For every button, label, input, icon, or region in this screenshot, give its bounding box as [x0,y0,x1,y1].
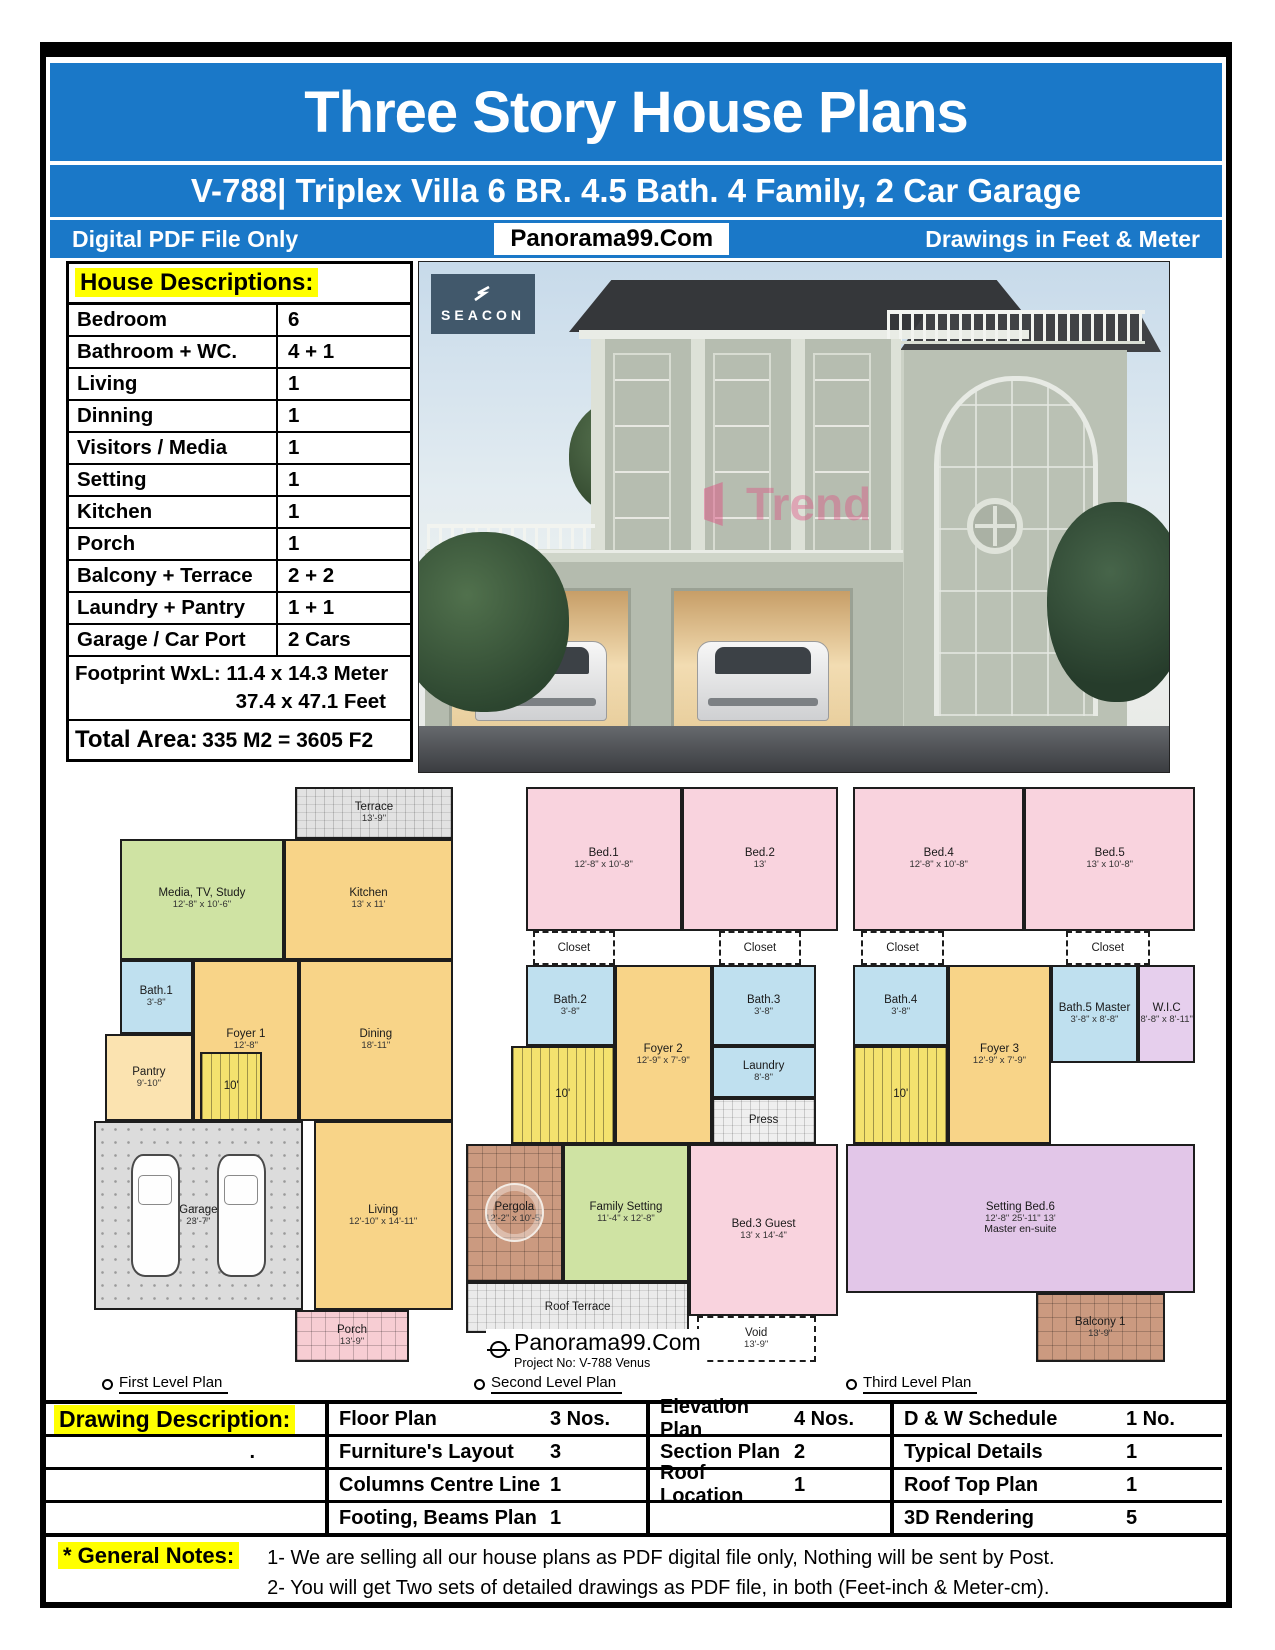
room-10: 10' [200,1052,262,1121]
drawing-table-cell: Columns Centre Line1 [329,1470,646,1503]
drawing-item-count: 1 [1126,1474,1212,1497]
page-title: Three Story House Plans [304,79,968,146]
drawing-description-table: Drawing Description: . Floor Plan3 Nos.F… [46,1400,1226,1537]
pdf-only-note: Digital PDF File Only [72,226,298,253]
room-terrace: Terrace13'-9" [295,787,452,839]
balcony-railing [887,310,1145,344]
plan-label: First Level Plan [102,1374,228,1394]
plan-label-text: Third Level Plan [863,1374,977,1394]
plan-label-marker-icon [474,1379,485,1390]
drawing-item-count: 2 [794,1441,880,1464]
room-name: Balcony 1 [1075,1316,1126,1329]
drawing-item-label: Section Plan [660,1441,794,1464]
room-dimension: 12'-8" [234,1041,258,1052]
house-description-value: 2 Cars [278,625,410,655]
drawing-item-label: Columns Centre Line [339,1474,550,1497]
room-bath-4: Bath.43'-8" [853,965,948,1046]
drawing-item-count: 3 [550,1441,636,1464]
house-photo: SEACON Trend [418,261,1170,773]
room-dimension: 3'-8" x 8'-8" [1071,1015,1119,1026]
drawing-item-label: D & W Schedule [904,1408,1126,1431]
total-area-label: Total Area: [75,726,198,753]
room-dimension: 13'-9" [1088,1329,1112,1340]
room-laundry: Laundry8'-8" [712,1046,816,1098]
floor-plans: Terrace13'-9"Media, TV, Study12'-8" x 10… [46,775,1226,1400]
house-descriptions-title-row: House Descriptions: [69,264,410,305]
room-bath-5-master: Bath.5 Master3'-8" x 8'-8" [1051,965,1138,1063]
drawing-item-count: 1 [550,1507,636,1530]
plan-project-no: Project No: V-788 Venus [514,1356,701,1370]
house-description-row: Dinning1 [69,401,410,433]
drawing-table-cell: 3D Rendering5 [894,1503,1222,1533]
units-note: Drawings in Feet & Meter [925,226,1200,253]
room-closet: Closet [533,931,615,966]
drawing-item-count: 1 [1126,1441,1212,1464]
tree [418,532,569,712]
room-bed-2: Bed.213' [682,787,838,931]
drawing-table-cell: Roof Top Plan1 [894,1470,1222,1503]
room-bed-5: Bed.513' x 10'-8" [1024,787,1195,931]
room-dimension: 12'-8" x 10'-8" [574,860,632,871]
drawing-item-count: 1 [794,1474,880,1497]
plan-label: Second Level Plan [474,1374,622,1394]
room-bath-3: Bath.33'-8" [712,965,816,1046]
house-description-label: Visitors / Media [69,433,278,463]
room-name: Family Setting [590,1201,663,1214]
room-name: 10' [555,1088,570,1101]
house-description-label: Living [69,369,278,399]
tree [1047,502,1170,702]
car-icons [96,1123,301,1309]
room-bed-4: Bed.412'-8" x 10'-8" [853,787,1024,931]
room-10: 10' [511,1046,615,1144]
room-foyer-3: Foyer 312'-9" x 7'-9" [948,965,1051,1143]
drawing-table-cell: Footing, Beams Plan1 [329,1503,646,1533]
garage-opening [671,588,853,729]
room-family-setting: Family Setting11'-4" x 12'-8" [563,1144,689,1282]
room-pantry: Pantry9'-10" [105,1034,193,1120]
house-descriptions-table: House Descriptions: Bedroom6Bathroom + W… [66,261,413,762]
room-closet: Closet [1066,931,1150,966]
car [697,641,829,721]
brand-box: Panorama99.Com [494,223,729,255]
footprint-meter: Footprint WxL: 11.4 x 14.3 Meter [75,660,404,688]
house-description-label: Garage / Car Port [69,625,278,655]
house-description-row: Kitchen1 [69,497,410,529]
house-description-value: 1 [278,529,410,559]
house-description-label: Setting [69,465,278,495]
drawing-col-schedules: D & W Schedule1 No.Typical Details1Roof … [894,1404,1222,1533]
room-dimension: 3'-8" [147,998,166,1009]
house-description-row: Bathroom + WC.4 + 1 [69,337,410,369]
plan-label-text: First Level Plan [119,1374,228,1394]
drawing-table-cell [650,1503,890,1533]
room-name: Bath.2 [554,994,587,1007]
house-description-label: Kitchen [69,497,278,527]
drawing-item-label: Typical Details [904,1441,1126,1464]
total-area-value: 335 M2 = 3605 F2 [202,729,373,752]
plan-brand-text: Panorama99.Com [514,1329,701,1355]
plan-label: Third Level Plan [846,1374,977,1394]
drawing-item-label: Furniture's Layout [339,1441,550,1464]
house-description-value: 1 [278,401,410,431]
room-dimension: 12'-10" x 14'-11" [349,1217,417,1228]
room-name: Roof Terrace [545,1301,611,1314]
room-dimension: 12'-9" x 7'-9" [637,1056,690,1067]
room-name: Setting Bed.6 [986,1201,1055,1214]
house-description-value: 2 + 2 [278,561,410,591]
room-dimension: 12'-8" x 10'-8" [909,860,967,871]
drawing-table-cell: D & W Schedule1 No. [894,1404,1222,1437]
drawing-item-label: Roof Top Plan [904,1474,1126,1497]
drawing-item-count: 1 [550,1474,636,1497]
room-dimension: 18'-11" [361,1041,390,1052]
drawing-table-cell: Typical Details1 [894,1437,1222,1470]
seacon-logo: SEACON [431,274,535,334]
general-notes-label-wrap: * General Notes: [58,1543,239,1569]
drawing-col-elevations: Elevation Plan4 Nos.Section Plan2Roof Lo… [650,1404,894,1533]
drawing-description-title: Drawing Description: [54,1405,295,1434]
footprint-feet: 37.4 x 47.1 Feet [75,688,404,716]
porthole-ornament [967,498,1023,554]
house-description-value: 6 [278,305,410,335]
seacon-logo-text: SEACON [441,307,525,323]
room-bath-2: Bath.23'-8" [526,965,615,1046]
room-dimension: 13' x 14'-4" [740,1231,787,1242]
room-name: Living [368,1204,398,1217]
subtitle-bar: V-788| Triplex Villa 6 BR. 4.5 Bath. 4 F… [50,165,1222,217]
general-notes-label: * General Notes: [58,1542,239,1569]
notes-list: 1- We are selling all our house plans as… [267,1543,1054,1603]
house-description-row: Visitors / Media1 [69,433,410,465]
room-bath-1: Bath.13'-8" [120,960,193,1035]
drawing-table-cell: Furniture's Layout3 [329,1437,646,1470]
plan-area: Bed.112'-8" x 10'-8"Bed.213'ClosetCloset… [466,787,838,1362]
page-frame: Three Story House Plans V-788| Triplex V… [40,42,1232,1608]
house-description-value: 1 [278,497,410,527]
drawing-description-title-cell: Drawing Description: [46,1404,325,1437]
room-dimension: 3'-8" [891,1007,910,1018]
house-description-row: Laundry + Pantry1 + 1 [69,593,410,625]
room-living: Living12'-10" x 14'-11" [314,1121,453,1311]
room-roof-terrace: Roof Terrace [466,1282,689,1334]
room-foyer-2: Foyer 212'-9" x 7'-9" [615,965,712,1143]
room-dimension: 8'-8" [754,1073,773,1084]
house-description-value: 1 [278,433,410,463]
note-line: 2- You will get Two sets of detailed dra… [267,1573,1054,1603]
plan-brand: Panorama99.Com Project No: V-788 Venus [486,1329,705,1370]
room-name: Bath.4 [884,994,917,1007]
drawing-item-count: 4 Nos. [794,1408,880,1431]
drawing-description-dot-cell: . [46,1437,325,1470]
room-dimension: 13' [754,860,766,871]
room-name: Foyer 3 [980,1043,1019,1056]
house-description-label: Porch [69,529,278,559]
room-dimension: 8'-8" x 8'-11" [1140,1015,1192,1026]
house-description-row: Balcony + Terrace2 + 2 [69,561,410,593]
room-name: Press [749,1114,778,1127]
drawing-item-label: Elevation Plan [660,1396,794,1442]
room-dimension: 13' x 10'-8" [1086,860,1133,871]
drawing-item-count: 3 Nos. [550,1408,636,1431]
plan-first-level: Terrace13'-9"Media, TV, Study12'-8" x 10… [94,775,460,1400]
room-name: Pantry [132,1066,165,1079]
room-dimension: 13' x 11' [351,900,385,911]
room-name: Bed.3 Guest [732,1218,796,1231]
room-dimension: 12'-9" x 7'-9" [973,1056,1026,1067]
room-dimension: 11'-4" x 12'-8" [597,1214,655,1225]
house-description-row: Bedroom6 [69,305,410,337]
drawing-table-cell: Roof Location1 [650,1470,890,1503]
room-closet: Closet [719,931,801,966]
room-bed-3-guest: Bed.3 Guest13' x 14'-4" [689,1144,838,1317]
room-dimension: 12'-8" x 10'-6" [173,900,231,911]
compass-icon [490,1341,507,1358]
room-name: Closet [886,942,919,955]
total-area-row: Total Area: 335 M2 = 3605 F2 [69,721,410,759]
drawing-item-count: 5 [1126,1507,1212,1530]
plan-label-text: Second Level Plan [491,1374,622,1394]
house-description-row: Garage / Car Port2 Cars [69,625,410,657]
house-description-label: Bedroom [69,305,278,335]
room-dimension: 9'-10" [137,1079,161,1090]
drawing-description-col-title: Drawing Description: . [46,1404,329,1533]
house-description-value: 4 + 1 [278,337,410,367]
house-descriptions-rows: Bedroom6Bathroom + WC.4 + 1Living1Dinnin… [69,305,410,657]
plan-label-marker-icon [102,1379,113,1390]
drawing-item-label: Roof Location [660,1462,794,1508]
room-dimension: 13'-9" [744,1340,768,1351]
page-subtitle: V-788| Triplex Villa 6 BR. 4.5 Bath. 4 F… [191,172,1081,210]
drawing-item-count: 1 No. [1126,1408,1212,1431]
room-closet: Closet [861,931,945,966]
house-description-value: 1 [278,465,410,495]
house-description-label: Dinning [69,401,278,431]
house-description-row: Setting1 [69,465,410,497]
room-kitchen: Kitchen13' x 11' [284,839,452,960]
room-name: Closet [744,942,777,955]
room-void: Void13'-9" [697,1316,816,1362]
room-media-tv-study: Media, TV, Study12'-8" x 10'-6" [120,839,285,960]
house-description-label: Laundry + Pantry [69,593,278,623]
plan-area: Bed.412'-8" x 10'-8"Bed.513' x 10'-8"Clo… [838,787,1218,1362]
room-subtitle: Master en-suite [984,1224,1056,1236]
room-dimension: 13'-9" [340,1337,364,1348]
room-dimension: 13'-9" [362,814,386,825]
room-press: Press [712,1098,816,1144]
room-garage: Garage23'-7" [94,1121,303,1311]
room-dimension: 3'-8" [754,1007,773,1018]
house-description-label: Bathroom + WC. [69,337,278,367]
house-description-row: Porch1 [69,529,410,561]
drawing-table-cell: Elevation Plan4 Nos. [650,1404,890,1437]
drawing-col-plans: Floor Plan3 Nos.Furniture's Layout3Colum… [329,1404,650,1533]
note-line: 1- We are selling all our house plans as… [267,1543,1054,1573]
room-pergola: Pergola12'-2" x 10'-5" [466,1144,563,1282]
plan-second-level: Bed.112'-8" x 10'-8"Bed.213'ClosetCloset… [466,775,838,1400]
drawing-table-cell: Floor Plan3 Nos. [329,1404,646,1437]
room-porch: Porch13'-9" [295,1310,408,1362]
info-bar: Digital PDF File Only Panorama99.Com Dra… [50,220,1222,258]
plan-third-level: Bed.412'-8" x 10'-8"Bed.513' x 10'-8"Clo… [838,775,1218,1400]
room-name: Foyer 2 [644,1043,683,1056]
ground [419,726,1169,772]
house-descriptions-title: House Descriptions: [75,268,318,297]
general-notes: * General Notes: 1- We are selling all o… [46,1543,1226,1603]
room-dining: Dining18'-11" [299,960,453,1121]
room-balcony-1: Balcony 113'-9" [1036,1293,1165,1362]
house-description-label: Balcony + Terrace [69,561,278,591]
drawing-description-empty-cell [46,1470,325,1503]
room-name: Bath.3 [747,994,780,1007]
drawing-description-empty-cell [46,1503,325,1533]
room-bed-1: Bed.112'-8" x 10'-8" [526,787,682,931]
house-description-value: 1 + 1 [278,593,410,623]
drawing-item-label: Footing, Beams Plan [339,1507,550,1530]
drawing-item-label: 3D Rendering [904,1507,1126,1530]
watermark: Trend [704,477,871,531]
house-description-value: 1 [278,369,410,399]
house-description-row: Living1 [69,369,410,401]
title-bar: Three Story House Plans [50,63,1222,161]
room-dimension: 3'-8" [561,1007,580,1018]
pergola-dome-icon [485,1183,545,1243]
footprint-row: Footprint WxL: 11.4 x 14.3 Meter 37.4 x … [69,657,410,721]
seacon-logo-icon [472,285,494,305]
room-name: Laundry [743,1060,785,1073]
room-name: 10' [224,1080,239,1093]
plan-label-marker-icon [846,1379,857,1390]
room-name: 10' [893,1088,908,1101]
plan-area: Terrace13'-9"Media, TV, Study12'-8" x 10… [94,787,460,1362]
room-name: Closet [558,942,591,955]
room-10: 10' [853,1046,948,1144]
drawing-item-label: Floor Plan [339,1408,550,1431]
room-name: Closet [1091,942,1124,955]
room-w-i-c: W.I.C8'-8" x 8'-11" [1138,965,1195,1063]
room-setting-bed-6: Setting Bed.612'-8" 25'-11" 13'Master en… [846,1144,1196,1294]
